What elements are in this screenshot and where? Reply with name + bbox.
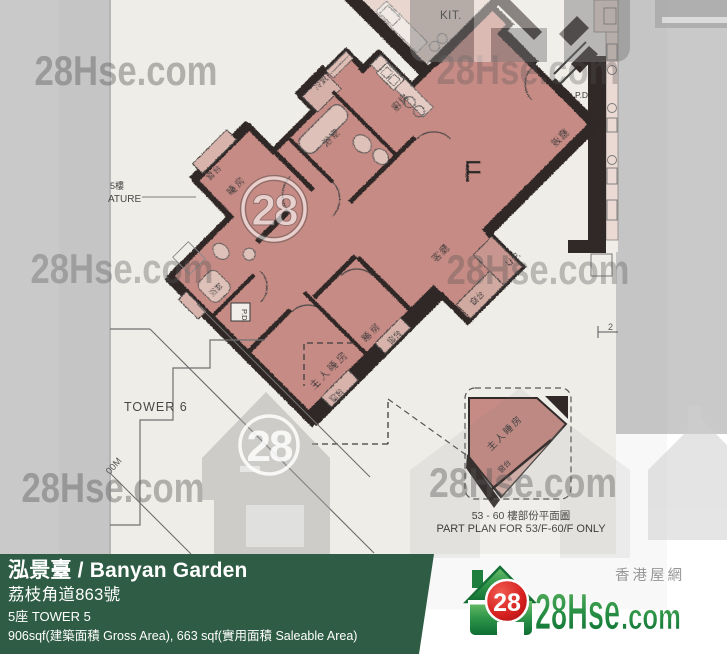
svg-text:28: 28 (252, 186, 298, 235)
svg-text:28Hse.com: 28Hse.com (22, 464, 205, 511)
svg-text:28Hse.com: 28Hse.com (35, 47, 218, 94)
svg-text:28: 28 (493, 589, 521, 617)
svg-text:28: 28 (247, 422, 293, 471)
svg-text:.com: .com (621, 596, 681, 637)
svg-text:荔枝角道863號: 荔枝角道863號 (8, 585, 120, 604)
svg-text:5座 TOWER 5: 5座 TOWER 5 (8, 609, 91, 624)
svg-text:香港屋網: 香港屋網 (615, 567, 685, 584)
svg-text:28Hse: 28Hse (535, 583, 620, 640)
svg-text:906sqf(建築面積 Gross Area), 663 s: 906sqf(建築面積 Gross Area), 663 sqf(實用面積 Sa… (8, 628, 357, 643)
svg-text:泓景臺 / Banyan Garden: 泓景臺 / Banyan Garden (8, 559, 248, 582)
svg-text:28Hse.com: 28Hse.com (31, 245, 214, 292)
svg-text:28Hse.com: 28Hse.com (447, 246, 630, 293)
